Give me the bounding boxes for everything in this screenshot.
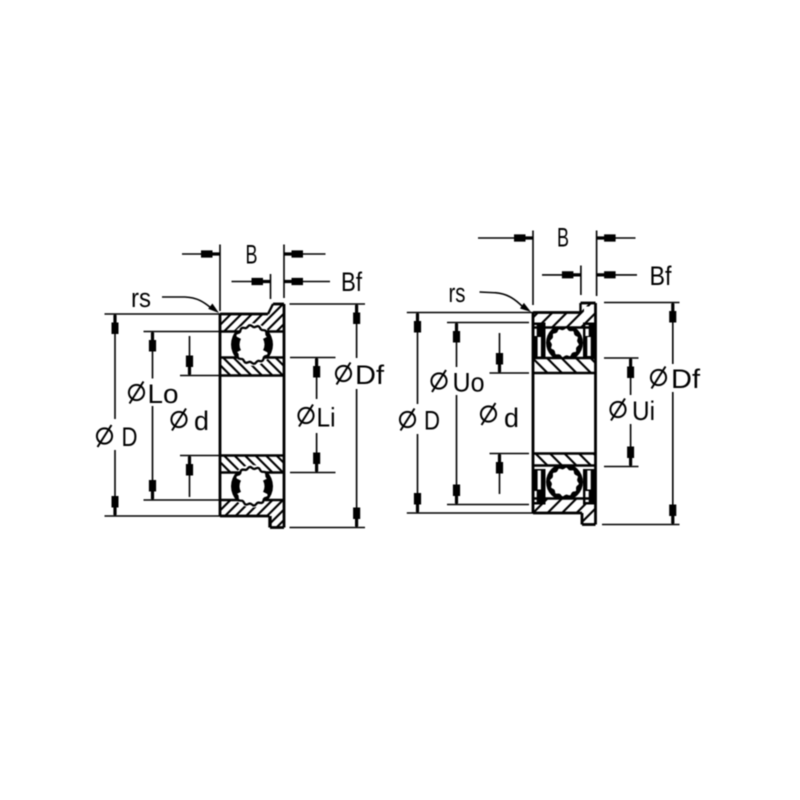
- svg-text:d: d: [504, 403, 519, 433]
- svg-text:Lo: Lo: [148, 379, 179, 409]
- svg-text:Li: Li: [317, 403, 336, 433]
- svg-text:D: D: [424, 406, 440, 436]
- svg-text:Bf: Bf: [341, 267, 362, 297]
- svg-text:D: D: [122, 422, 138, 452]
- svg-text:Bf: Bf: [650, 261, 672, 291]
- svg-text:d: d: [194, 406, 209, 436]
- svg-text:B: B: [246, 240, 258, 270]
- svg-text:Ui: Ui: [632, 396, 655, 426]
- svg-text:Uo: Uo: [453, 368, 485, 398]
- svg-text:Df: Df: [355, 360, 385, 390]
- svg-text:Df: Df: [671, 364, 701, 394]
- svg-text:rs: rs: [449, 278, 466, 308]
- svg-text:B: B: [557, 223, 569, 253]
- svg-text:rs: rs: [131, 283, 151, 313]
